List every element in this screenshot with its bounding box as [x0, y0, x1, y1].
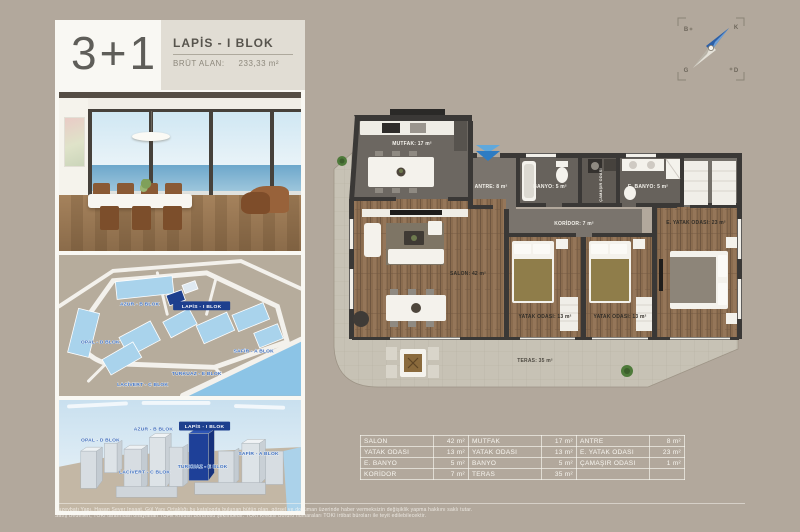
room-name: ÇAMAŞIR ODASI [577, 458, 650, 469]
compass-needle [693, 28, 729, 68]
map-label-opal: OPAL - D BLOK [81, 340, 120, 346]
compass: B K G D [674, 14, 748, 84]
lounge-chair [241, 192, 270, 214]
aerial-label-turkuaz: TURKUAZ - E BLOK [178, 464, 228, 470]
room-name: TERAS [469, 469, 542, 480]
window-mullion [270, 109, 274, 195]
label-terrace: TERAS: 35 m² [517, 358, 553, 364]
dining-chair [132, 206, 151, 230]
table-row: KORİDOR 7 m² TERAS 35 m² [361, 469, 685, 480]
room-area: 5 m² [542, 458, 577, 469]
highlighted-building [189, 429, 215, 480]
label-corridor: KORİDOR: 7 m² [554, 220, 594, 227]
table-row: SALON 42 m² MUTFAK 17 m² ANTRE 8 m² [361, 436, 685, 447]
table-row: E. BANYO 5 m² BANYO 5 m² ÇAMAŞIR ODASI 1… [361, 458, 685, 469]
map-label-turkuaz: TURKUAZ - E BLOK [172, 371, 222, 377]
label-kitchen: MUTFAK: 17 m² [392, 141, 432, 147]
wall-art [64, 117, 85, 167]
aerial-label-safir: SAFİR - A BLOK [238, 450, 279, 457]
room-area: 23 m² [650, 447, 685, 458]
dining-chair [100, 206, 119, 230]
room-name: YATAK ODASI [361, 447, 434, 458]
aerial-label-opal: OPAL - D BLOK [81, 437, 120, 443]
brochure-page: { "page": {"background": "#b2a89c"}, "co… [0, 0, 800, 532]
dining-chair [163, 206, 182, 230]
area-table: SALON 42 m² MUTFAK 17 m² ANTRE 8 m² YATA… [360, 435, 685, 480]
aerial-view: OPAL - D BLOK AZUR - B BLOK LAPİS - I BL… [59, 400, 301, 511]
unit-type: 3+1 [71, 26, 158, 80]
block-name: LAPİS - I BLOK [173, 36, 293, 55]
label-living-room: SALON: 42 m² [450, 271, 486, 277]
compass-south: G [684, 68, 689, 74]
room-name: KORİDOR [361, 469, 434, 480]
floor-plan: MUTFAK: 17 m² ANTRE: 8 m² BANYO: 5 m² ÇA… [330, 98, 750, 400]
label-bedroom-1: YATAK ODASI: 13 m² [519, 314, 572, 320]
room-area: 42 m² [434, 436, 469, 447]
gross-area: BRÜT ALAN: 233,33 m² [173, 59, 293, 68]
gross-area-label: BRÜT ALAN: [173, 59, 225, 68]
label-master-bedroom: E. YATAK ODASI: 23 m² [666, 220, 726, 226]
room-area: 13 m² [434, 447, 469, 458]
label-entry: ANTRE: 8 m² [475, 184, 508, 190]
room-name: ANTRE [577, 436, 650, 447]
disclaimer-line-2: Satış Bedelleri, TOKİ tarafından onaylan… [55, 513, 745, 519]
room-area: 1 m² [650, 458, 685, 469]
room-area [650, 469, 685, 480]
label-ensuite-bath: E. BANYO: 5 m² [628, 184, 668, 190]
map-label-lapis: LAPİS - I BLOK [182, 303, 222, 310]
room-area: 8 m² [650, 436, 685, 447]
room-area: 35 m² [542, 469, 577, 480]
header: 3+1 LAPİS - I BLOK BRÜT ALAN: 233,33 m² [55, 20, 305, 90]
room-name: YATAK ODASI [469, 447, 542, 458]
left-panel: 3+1 LAPİS - I BLOK BRÜT ALAN: 233,33 m² [55, 20, 305, 515]
room-area: 5 m² [434, 458, 469, 469]
table-flowers [140, 179, 152, 193]
compass-west: B [684, 27, 689, 33]
window-mullion [88, 109, 92, 195]
gross-area-value: 233,33 m² [239, 59, 280, 68]
map-label-azur: AZUR - B BLOK [120, 301, 160, 307]
label-laundry: ÇAMAŞIR ODASI [599, 168, 603, 201]
room-name: MUTFAK [469, 436, 542, 447]
aerial-label-lapis: LAPİS - I BLOK [185, 423, 225, 430]
disclaimer: Kuzeybatı Yapı, Hasan Sever İnşaat, Gül … [55, 503, 745, 519]
room-area: 7 m² [434, 469, 469, 480]
room-name: SALON [361, 436, 434, 447]
block-title-box: LAPİS - I BLOK BRÜT ALAN: 233,33 m² [161, 20, 305, 90]
label-bedroom-2: YATAK ODASI: 13 m² [594, 314, 647, 320]
room-name: E. YATAK ODASI [577, 447, 650, 458]
compass-east: D [734, 68, 739, 74]
aerial-label-lacivert: LACİVERT - C BLOK [119, 469, 170, 476]
window-mullion [209, 109, 213, 195]
interior-photo [59, 92, 301, 251]
room-name [577, 469, 650, 480]
site-map: AZUR - B BLOK LAPİS - I BLOK OPAL - D BL… [59, 255, 301, 396]
room-area: 17 m² [542, 436, 577, 447]
room-area: 13 m² [542, 447, 577, 458]
aerial-label-azur: AZUR - B BLOK [134, 426, 174, 432]
room-name: BANYO [469, 458, 542, 469]
compass-north: K [734, 25, 739, 31]
table-row: YATAK ODASI 13 m² YATAK ODASI 13 m² E. Y… [361, 447, 685, 458]
map-label-lacivert: LACİVERT - C BLOK [117, 381, 168, 388]
label-bathroom: BANYO: 5 m² [533, 184, 567, 190]
map-label-safir: SAFİR - A BLOK [234, 348, 275, 355]
room-name: E. BANYO [361, 458, 434, 469]
